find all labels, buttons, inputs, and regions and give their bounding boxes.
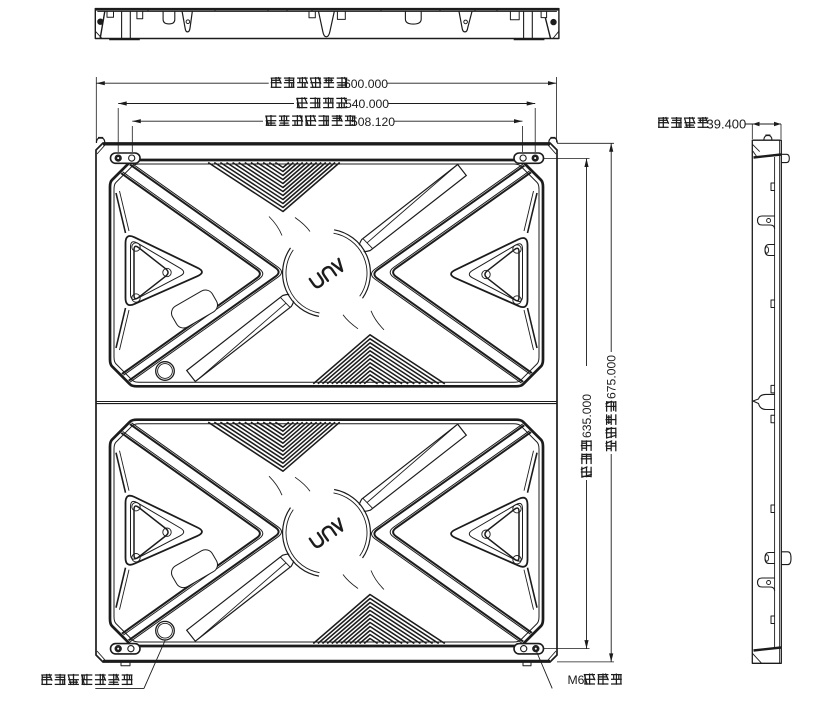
svg-text:600.000: 600.000 bbox=[344, 77, 388, 91]
svg-text:675.000: 675.000 bbox=[605, 355, 619, 399]
svg-text:M6: M6 bbox=[568, 673, 585, 687]
svg-text:540.000: 540.000 bbox=[345, 97, 389, 111]
svg-text:39.400: 39.400 bbox=[707, 117, 747, 132]
svg-text:635.000: 635.000 bbox=[580, 394, 594, 438]
svg-text:508.120: 508.120 bbox=[351, 115, 395, 129]
